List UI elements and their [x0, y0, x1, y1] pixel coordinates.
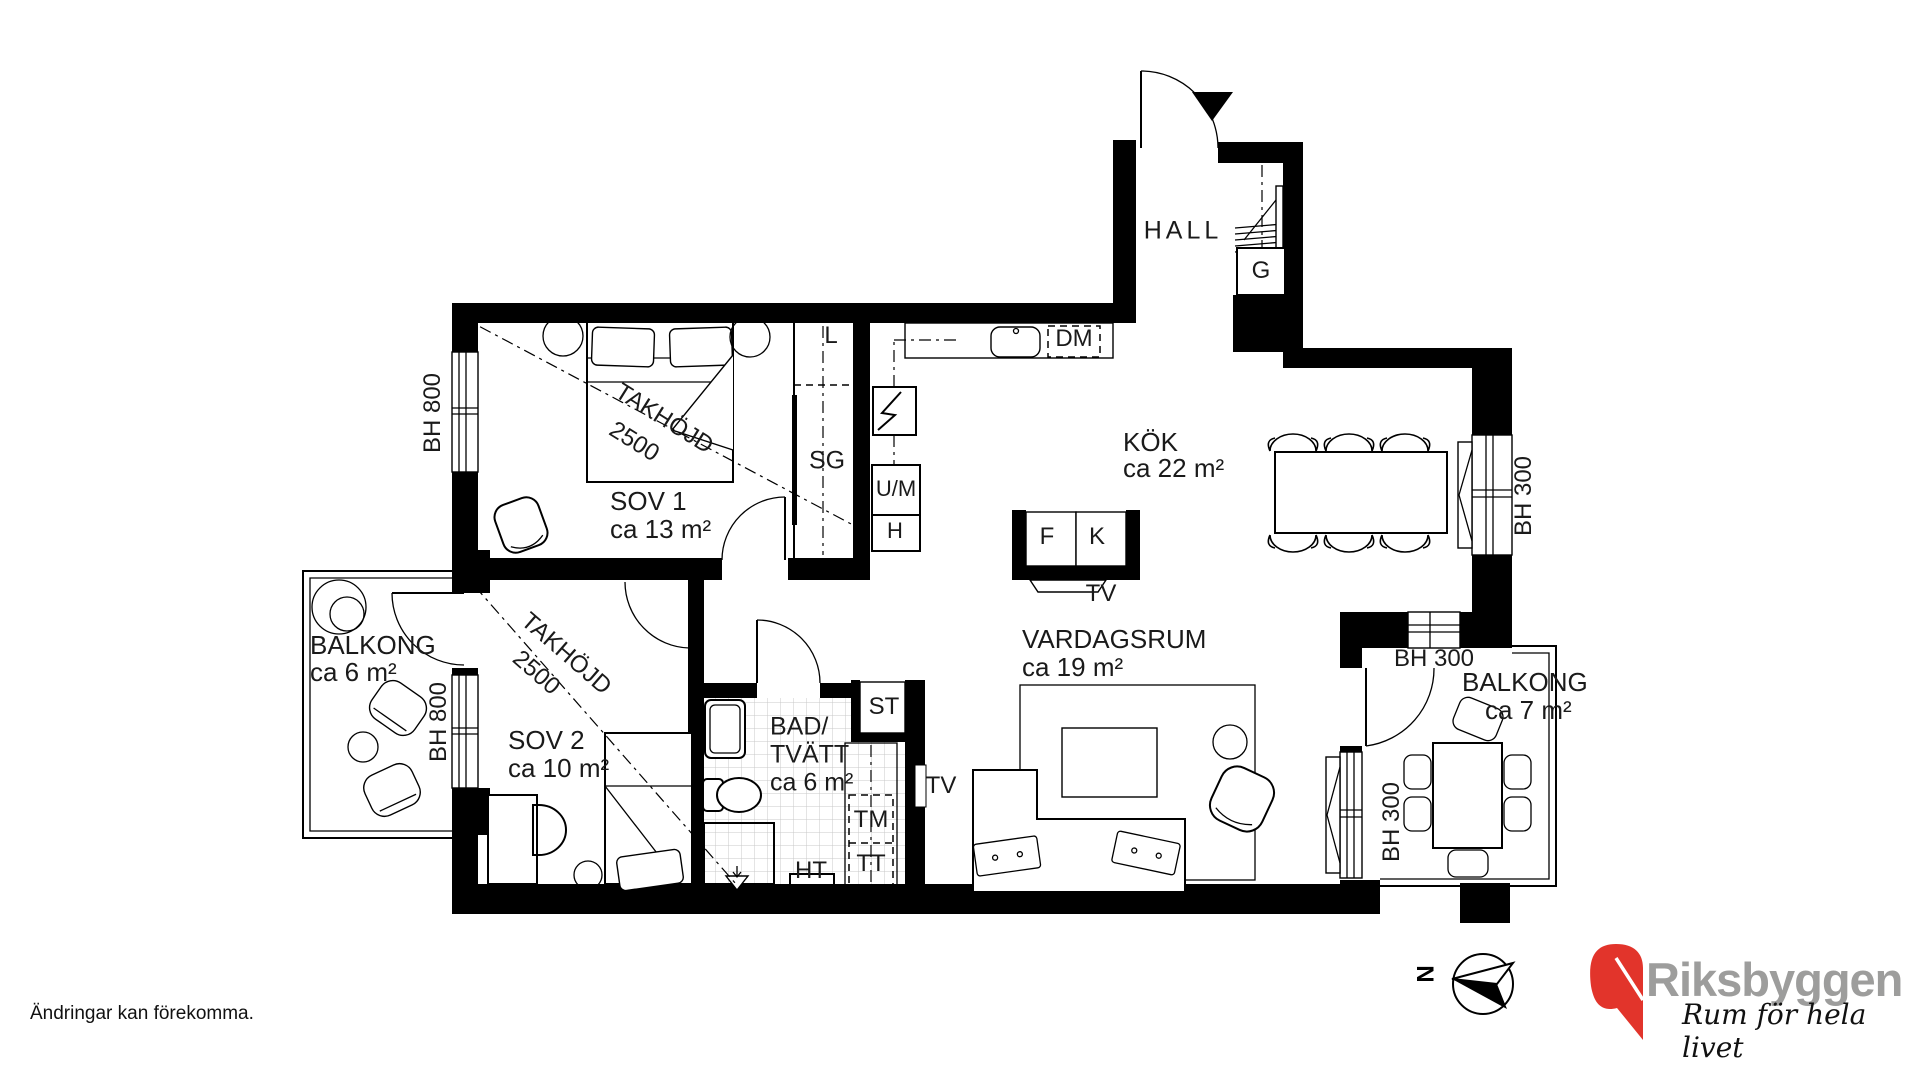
window-vardagsrum-bh300: [1326, 752, 1362, 878]
oven-micro-um: [872, 465, 920, 515]
north-label: N: [1413, 965, 1441, 982]
door-balkong-ost: [1366, 668, 1434, 746]
closet-l-sg: [792, 322, 853, 558]
window-sov2-bh800: [452, 675, 478, 788]
balcony-chair: [364, 675, 432, 741]
bath-sink: [705, 700, 745, 758]
tv-niche: [915, 765, 926, 807]
hall-wardrobe: [1235, 165, 1283, 252]
balkong-ost-furniture: [1404, 695, 1531, 877]
round-table: [312, 580, 366, 634]
toilet: [703, 778, 761, 812]
coffee-table: [1062, 728, 1157, 797]
entry-arrow-icon: [1192, 92, 1233, 121]
lounge-chair: [1204, 761, 1279, 837]
pillow: [591, 327, 654, 367]
balcony-chair: [359, 759, 425, 821]
side-table: [1213, 725, 1247, 759]
window-balkong-ost-bh300: [1408, 612, 1460, 648]
disclaimer-text: Ändringar kan förekomma.: [30, 1003, 254, 1025]
towel-dryer-ht: [790, 874, 834, 885]
window-kok-bh300: [1458, 435, 1512, 555]
closet-st: [860, 682, 905, 733]
electrical-panel: [873, 340, 960, 465]
balcony-table: [1433, 743, 1502, 848]
armchair: [491, 494, 551, 557]
desk: [488, 795, 537, 884]
floor-plan-drawing: [0, 0, 1920, 1080]
fridge-freezer-fk: [1012, 510, 1140, 592]
small-table: [348, 732, 378, 762]
door-bad: [757, 620, 820, 683]
pillow: [669, 327, 732, 367]
door-sov2: [625, 582, 691, 648]
window-sov1-bh800: [452, 352, 478, 472]
entry-door: [1141, 71, 1233, 148]
dining-table-group: [1268, 434, 1447, 552]
door-sov1: [722, 497, 785, 560]
cabinet-h: [872, 515, 920, 551]
brand-slogan: Rum för hela livet: [1682, 998, 1920, 1064]
door-balkong-vast: [392, 593, 464, 665]
balkong-vast-furniture: [312, 580, 432, 821]
floorplan-page: HALLKÖKca 22 m²SOV 1ca 13 m²TAKHÖJD2500S…: [0, 0, 1920, 1080]
north-compass-icon: [1452, 954, 1513, 1014]
closet-g: [1237, 248, 1285, 295]
riksbyggen-logo-icon: [1590, 944, 1643, 1040]
kitchen-sink: [991, 327, 1040, 357]
vardagsrum-furniture: [973, 685, 1280, 892]
